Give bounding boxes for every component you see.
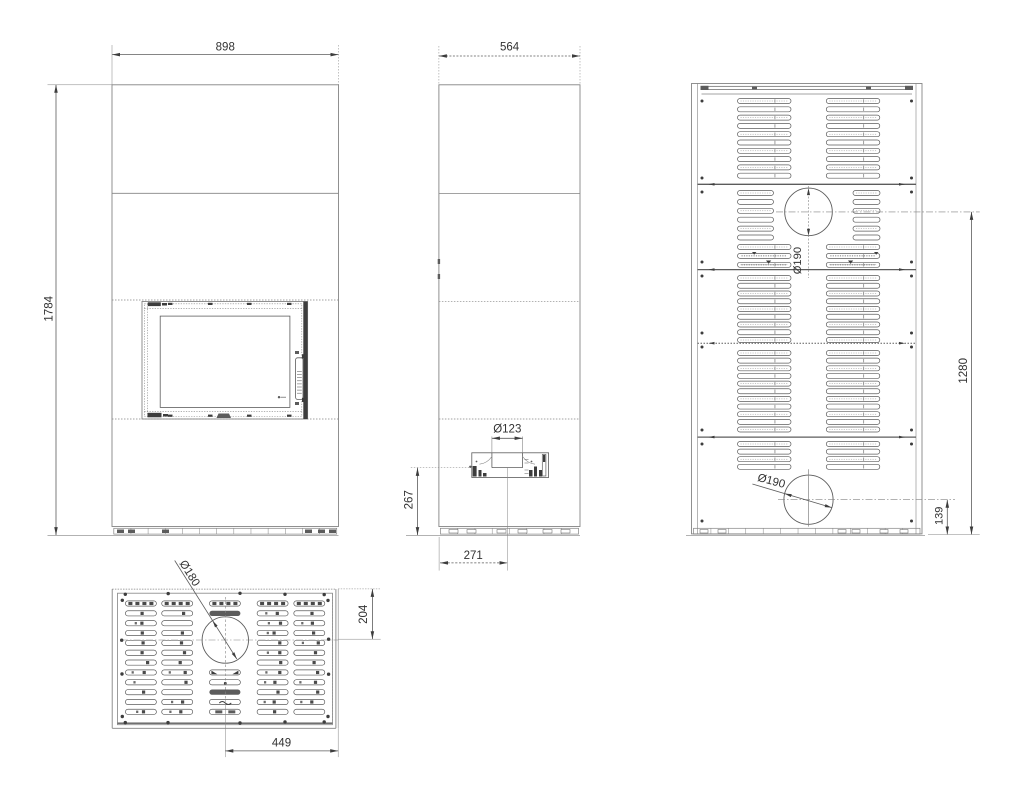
svg-text:898: 898: [216, 42, 235, 54]
svg-text:271: 271: [464, 550, 483, 562]
svg-text:Ø123: Ø123: [493, 424, 521, 436]
svg-text:204: 204: [358, 604, 370, 624]
svg-text:1280: 1280: [958, 358, 970, 384]
svg-text:Ø190: Ø190: [792, 247, 804, 274]
svg-text:139: 139: [934, 507, 946, 525]
svg-text:1784: 1784: [43, 295, 55, 321]
svg-text:267: 267: [404, 490, 416, 509]
svg-text:449: 449: [272, 737, 291, 749]
svg-text:564: 564: [500, 42, 520, 54]
